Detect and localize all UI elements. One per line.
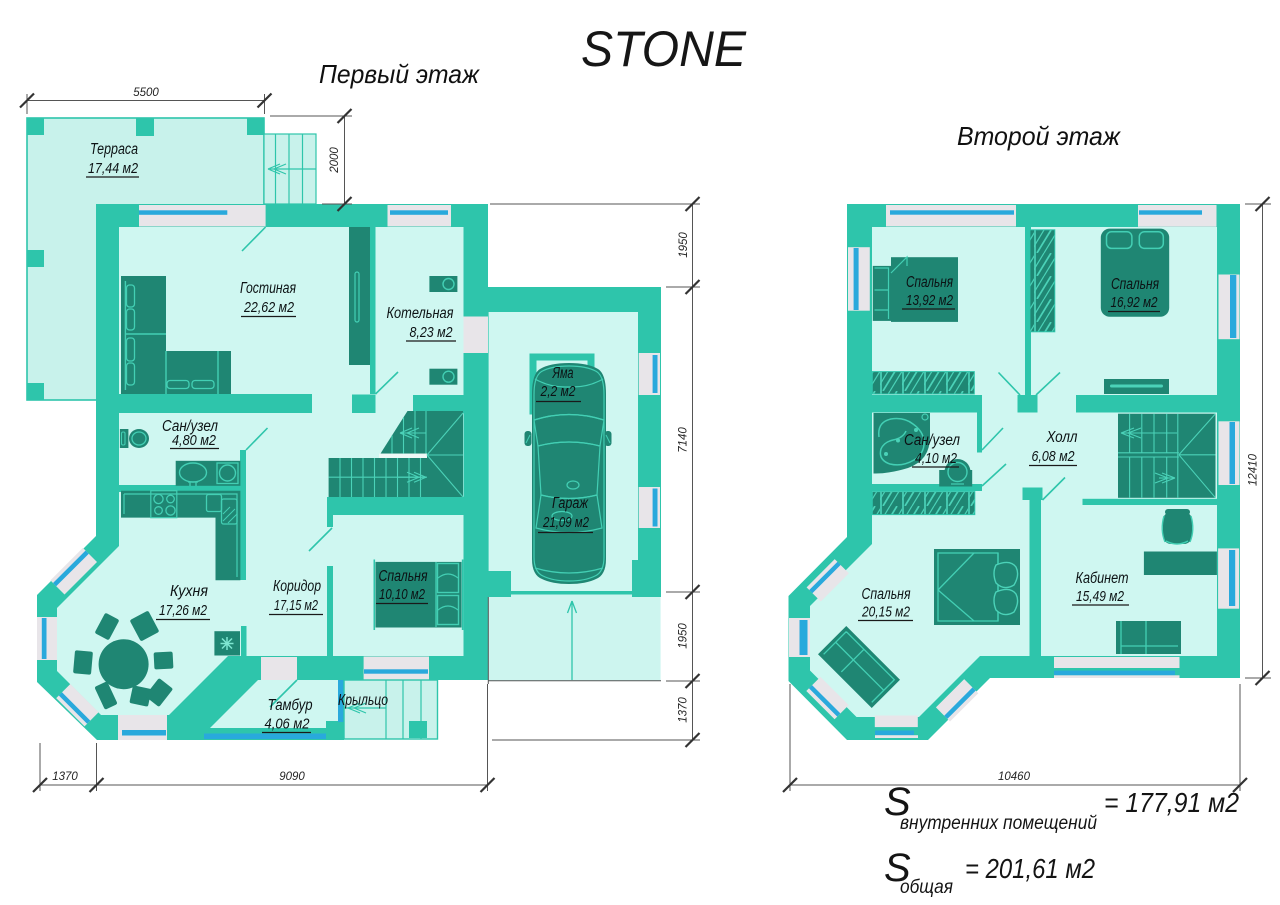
svg-text:Сан/узел: Сан/узел (904, 432, 960, 449)
svg-text:20,15 м2: 20,15 м2 (861, 604, 910, 621)
svg-text:Кабинет: Кабинет (1076, 570, 1129, 587)
svg-text:Второй этаж: Второй этаж (957, 121, 1121, 151)
svg-text:Первый этаж: Первый этаж (319, 59, 480, 89)
svg-text:16,92 м2: 16,92 м2 (1111, 294, 1159, 311)
svg-text:22,62 м2: 22,62 м2 (243, 299, 294, 316)
svg-text:4,10 м2: 4,10 м2 (915, 450, 958, 467)
svg-text:2,2 м2: 2,2 м2 (540, 383, 576, 400)
svg-text:= 201,61 м2: = 201,61 м2 (965, 853, 1095, 884)
svg-text:17,15 м2: 17,15 м2 (274, 597, 318, 614)
svg-text:Коридор: Коридор (273, 578, 321, 595)
svg-text:1950: 1950 (678, 232, 690, 258)
svg-text:внутренних помещений: внутренних помещений (900, 813, 1097, 834)
svg-text:Спальня: Спальня (1111, 276, 1159, 293)
svg-text:1370: 1370 (678, 697, 690, 723)
svg-text:= 177,91 м2: = 177,91 м2 (1104, 787, 1239, 818)
svg-text:Котельная: Котельная (387, 305, 454, 322)
svg-text:общая: общая (900, 877, 953, 898)
svg-text:Крыльцо: Крыльцо (338, 692, 388, 709)
svg-text:4,80 м2: 4,80 м2 (172, 432, 217, 449)
svg-text:Яма: Яма (552, 365, 574, 382)
svg-text:8,23 м2: 8,23 м2 (410, 324, 454, 341)
svg-text:Гараж: Гараж (552, 495, 589, 512)
svg-text:2000: 2000 (329, 147, 341, 174)
svg-text:Спальня: Спальня (862, 586, 911, 603)
svg-text:17,26 м2: 17,26 м2 (159, 602, 208, 619)
svg-text:5500: 5500 (133, 87, 159, 99)
svg-text:9090: 9090 (279, 771, 305, 783)
svg-text:Гостиная: Гостиная (240, 280, 296, 297)
svg-text:10,10 м2: 10,10 м2 (379, 586, 425, 603)
svg-text:15,49 м2: 15,49 м2 (1076, 588, 1125, 605)
svg-text:1950: 1950 (678, 623, 690, 649)
svg-text:Тамбур: Тамбур (268, 697, 313, 714)
svg-text:Кухня: Кухня (170, 583, 208, 600)
svg-text:12410: 12410 (1248, 453, 1260, 486)
svg-text:21,09 м2: 21,09 м2 (542, 514, 589, 531)
svg-text:Спальня: Спальня (379, 568, 428, 585)
svg-text:6,08 м2: 6,08 м2 (1032, 448, 1076, 465)
svg-text:Спальня: Спальня (906, 274, 953, 291)
svg-text:4,06 м2: 4,06 м2 (265, 716, 311, 733)
svg-text:Холл: Холл (1046, 429, 1078, 446)
svg-text:7140: 7140 (678, 427, 690, 453)
svg-text:1370: 1370 (52, 771, 78, 783)
svg-text:17,44 м2: 17,44 м2 (88, 160, 139, 177)
svg-text:Терраса: Терраса (90, 141, 138, 158)
svg-text:13,92 м2: 13,92 м2 (906, 292, 954, 309)
svg-text:10460: 10460 (998, 771, 1031, 783)
svg-text:STONE: STONE (581, 21, 747, 77)
